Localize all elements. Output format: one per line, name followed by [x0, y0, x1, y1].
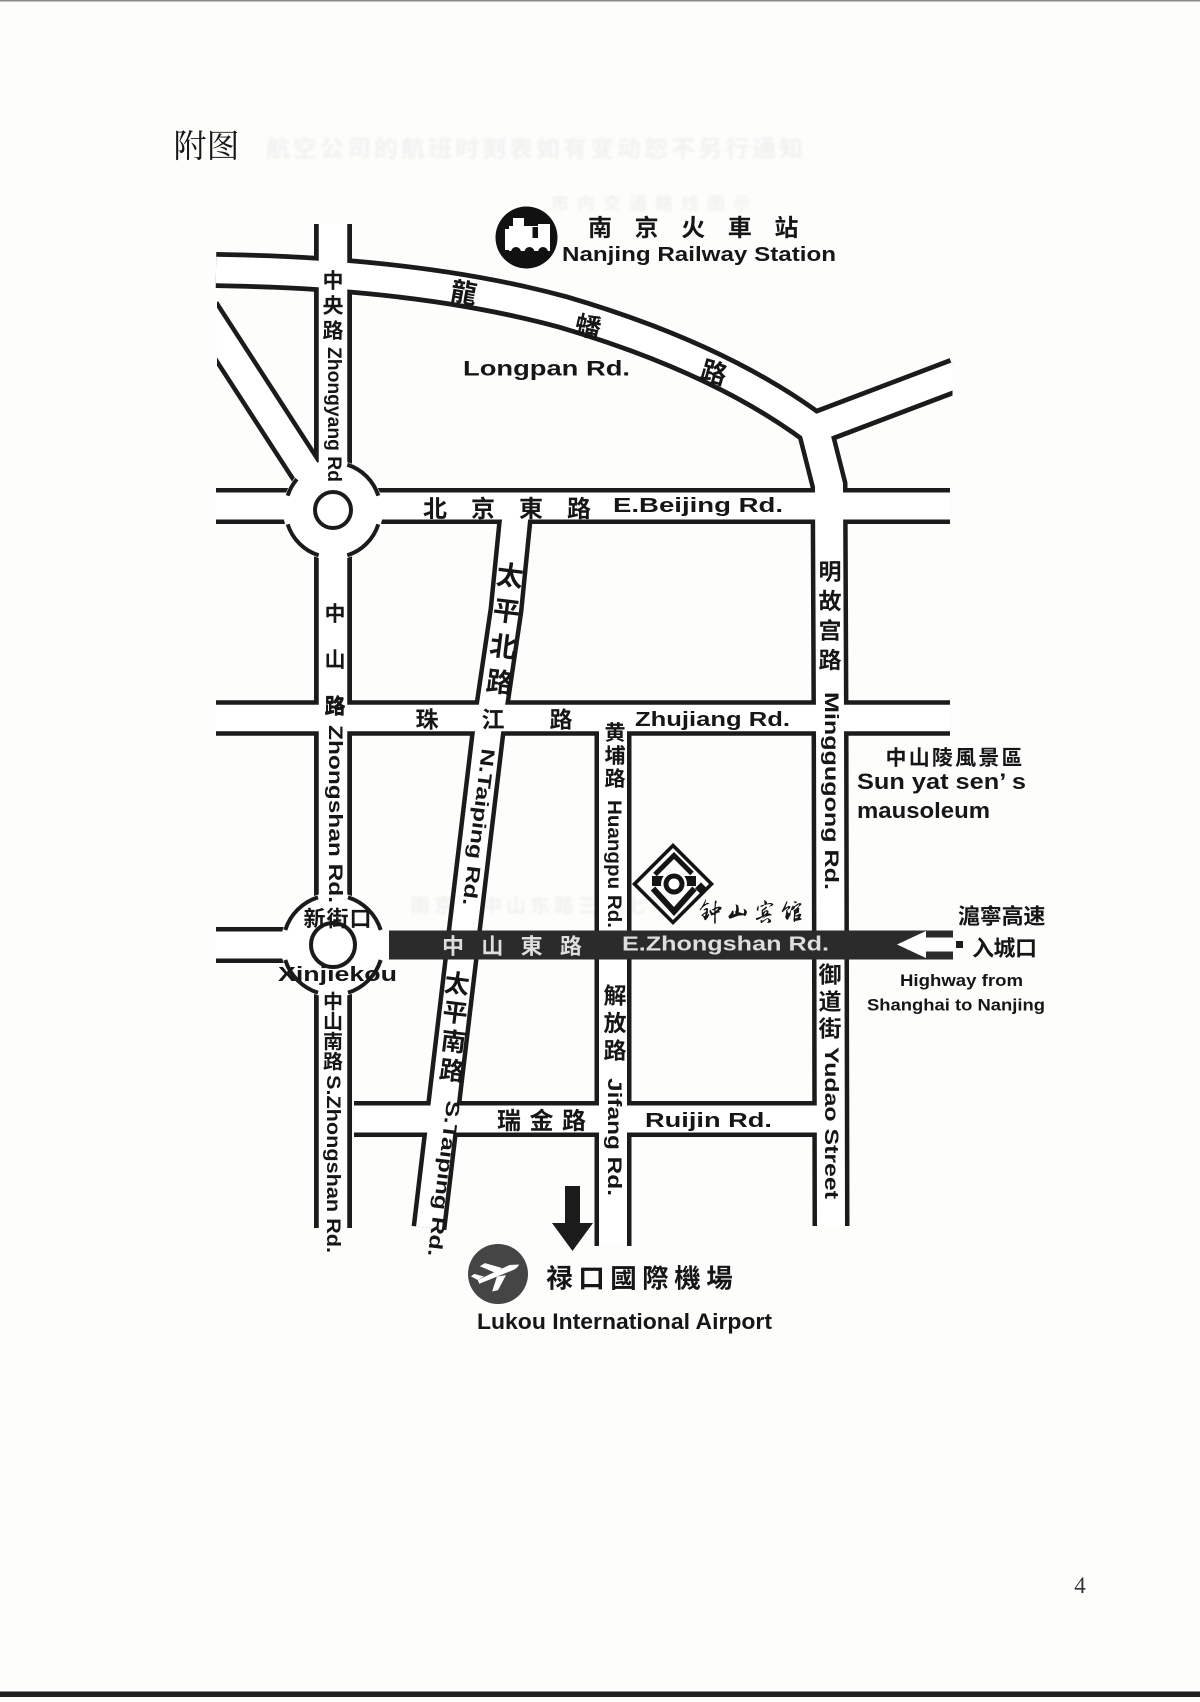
svg-text:Shanghai to Nanjing: Shanghai to Nanjing: [867, 996, 1045, 1015]
svg-text:E.Zhongshan Rd.: E.Zhongshan Rd.: [622, 933, 829, 956]
svg-text:Minggugong Rd.: Minggugong Rd.: [820, 692, 841, 890]
svg-text:mausoleum: mausoleum: [857, 798, 990, 823]
svg-text:Highway from: Highway from: [900, 972, 1023, 990]
svg-text:Nanjing Railway Station: Nanjing Railway Station: [562, 243, 836, 266]
svg-text:Ruijin Rd.: Ruijin Rd.: [645, 1110, 772, 1132]
svg-text:Sun yat sen’ s: Sun yat sen’ s: [857, 769, 1026, 794]
svg-text:Zhongyang Rd: Zhongyang Rd: [323, 347, 344, 482]
svg-text:Zhongshan Rd.: Zhongshan Rd.: [324, 725, 345, 903]
svg-text:Yudao Street: Yudao Street: [820, 1047, 841, 1200]
svg-text:Xinjiekou: Xinjiekou: [278, 964, 397, 986]
svg-text:Lukou International Airport: Lukou International Airport: [477, 1309, 773, 1334]
svg-text:S.Zhongshan Rd.: S.Zhongshan Rd.: [322, 1075, 343, 1253]
svg-text:Longpan Rd.: Longpan Rd.: [463, 357, 630, 381]
svg-text:4: 4: [1074, 1573, 1086, 1598]
svg-text:Huangpu Rd.: Huangpu Rd.: [603, 800, 624, 928]
svg-text:Zhujiang Rd.: Zhujiang Rd.: [635, 708, 790, 731]
svg-text:E.Beijing Rd.: E.Beijing Rd.: [613, 495, 783, 517]
svg-text:Jifang Rd.: Jifang Rd.: [603, 1078, 624, 1196]
